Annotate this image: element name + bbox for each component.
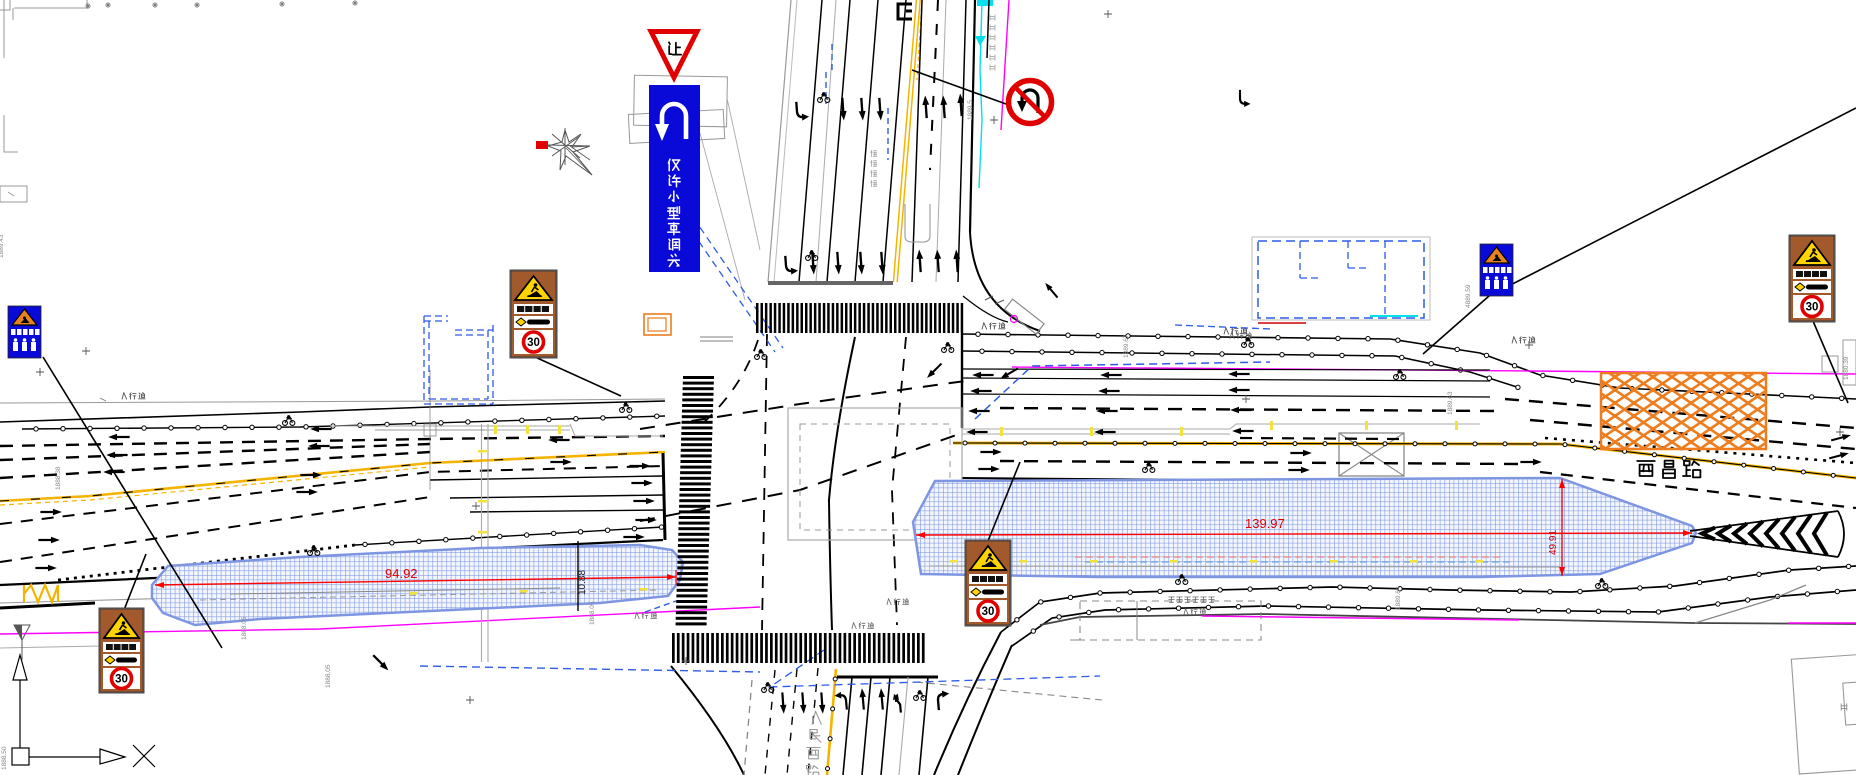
svg-text:1888.50: 1888.50	[1, 746, 8, 770]
svg-text:1889.43: 1889.43	[0, 234, 5, 258]
svg-text:1889.63: 1889.63	[1447, 391, 1454, 415]
svg-text:94.92: 94.92	[385, 566, 418, 581]
svg-text:1888.05: 1888.05	[325, 664, 332, 688]
svg-text:1888.38: 1888.38	[55, 466, 62, 490]
svg-text:1889.67: 1889.67	[1123, 334, 1130, 358]
svg-text:1889.64: 1889.64	[1395, 586, 1402, 610]
svg-text:1889.5: 1889.5	[967, 100, 974, 120]
svg-text:1880.39: 1880.39	[1843, 356, 1850, 380]
svg-text:1888.05: 1888.05	[241, 616, 248, 640]
svg-text:10.88: 10.88	[577, 570, 588, 595]
svg-text:4889.59: 4889.59	[1465, 284, 1472, 308]
svg-text:1888.05: 1888.05	[589, 601, 596, 625]
svg-text:139.97: 139.97	[1245, 516, 1285, 531]
svg-text:30: 30	[1806, 302, 1819, 314]
svg-text:30: 30	[982, 606, 995, 618]
svg-text:49.91: 49.91	[1548, 530, 1559, 555]
svg-text:30: 30	[115, 674, 128, 686]
svg-text:30: 30	[527, 337, 540, 349]
